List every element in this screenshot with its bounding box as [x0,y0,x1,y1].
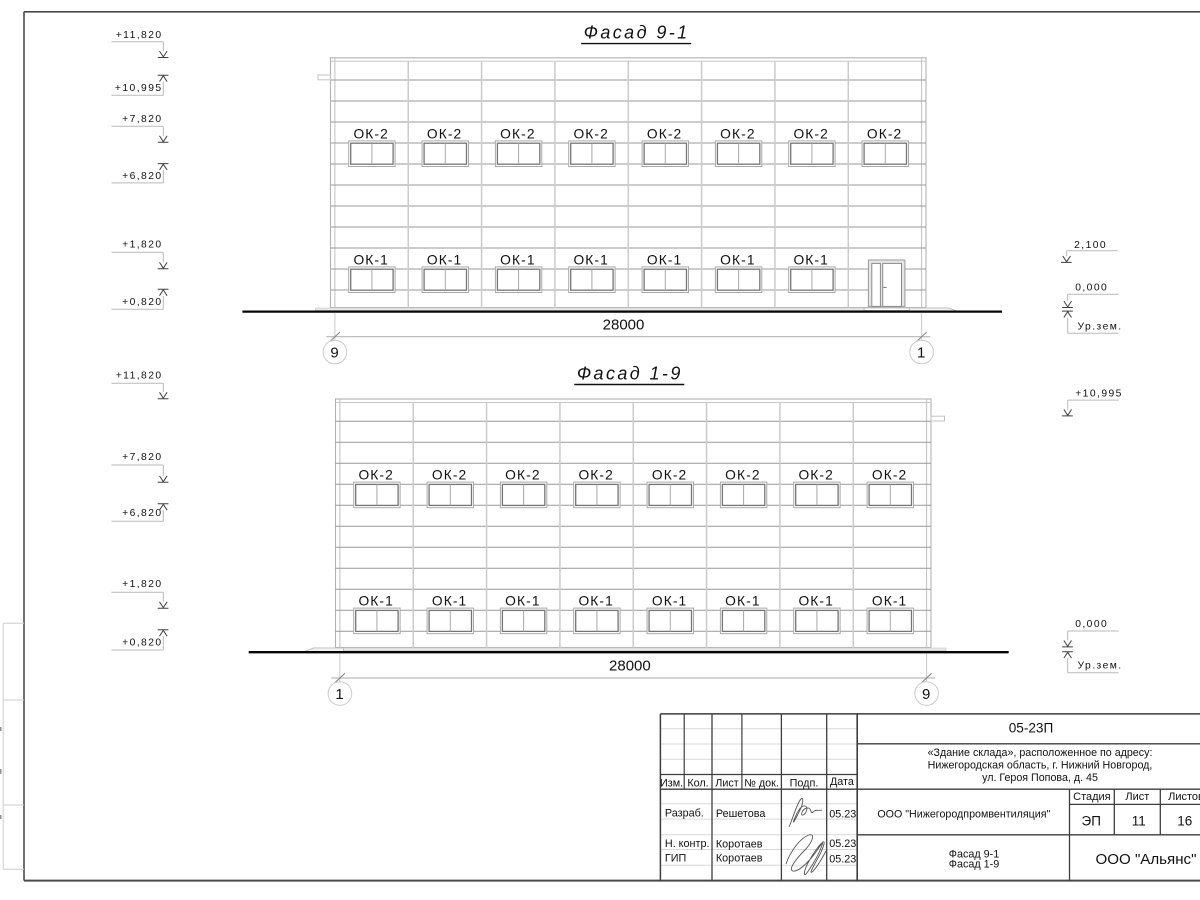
svg-text:Н. контр.: Н. контр. [665,838,710,850]
svg-text:28000: 28000 [609,658,651,675]
svg-text:05.23: 05.23 [829,838,856,850]
svg-text:ОК-1: ОК-1 [358,594,393,609]
svg-text:ОК-2: ОК-2 [353,126,388,141]
svg-text:2,100: 2,100 [1074,240,1107,251]
svg-text:№ док.: № док. [744,777,779,789]
svg-text:ОК-1: ОК-1 [573,252,608,267]
svg-text:ОК-1: ОК-1 [798,594,833,609]
svg-text:Листов: Листов [1168,791,1200,803]
svg-text:ОК-2: ОК-2 [720,126,755,141]
svg-text:+7,820: +7,820 [122,114,162,125]
svg-text:Стадия: Стадия [1073,791,1111,803]
svg-text:ОК-2: ОК-2 [432,468,467,483]
svg-text:+11,820: +11,820 [116,30,163,41]
svg-text:16: 16 [1177,814,1192,829]
svg-text:ОК-2: ОК-2 [798,468,833,483]
svg-text:ОК-1: ОК-1 [793,252,828,267]
svg-text:+0,820: +0,820 [122,297,162,308]
svg-text:Фасад 1-9: Фасад 1-9 [949,859,1000,871]
svg-text:+7,820: +7,820 [122,452,162,463]
svg-text:Ур.зем.: Ур.зем. [1078,660,1123,671]
svg-text:Коротаев: Коротаев [716,838,763,850]
svg-text:ОК-2: ОК-2 [573,126,608,141]
svg-text:ОК-1: ОК-1 [505,594,540,609]
svg-text:ОК-1: ОК-1 [432,594,467,609]
svg-text:+10,995: +10,995 [1075,388,1123,399]
svg-text:ОК-2: ОК-2 [647,126,682,141]
svg-text:«Здание склада», расположенное: «Здание склада», расположенное по адресу… [928,747,1153,759]
svg-text:Коротаев: Коротаев [716,853,763,865]
svg-text:Ур.зем.: Ур.зем. [1078,322,1123,333]
svg-text:+0,820: +0,820 [122,637,162,648]
svg-text:Разраб.: Разраб. [665,808,704,820]
svg-text:+1,820: +1,820 [122,579,162,590]
svg-text:Решетова: Решетова [716,808,766,820]
svg-text:ОК-2: ОК-2 [500,126,535,141]
svg-text:ОК-1: ОК-1 [500,252,535,267]
svg-text:05.23: 05.23 [829,808,856,820]
svg-text:ОК-2: ОК-2 [652,468,687,483]
svg-text:+6,820: +6,820 [122,171,162,182]
svg-text:1: 1 [917,344,925,361]
svg-text:ЭП: ЭП [1081,814,1100,829]
svg-text:ОК-2: ОК-2 [872,468,907,483]
svg-text:+1,820: +1,820 [122,240,162,251]
svg-text:ОК-2: ОК-2 [725,468,760,483]
svg-text:ОК-1: ОК-1 [353,252,388,267]
svg-text:Фасад 1-9: Фасад 1-9 [577,363,683,383]
svg-text:ОК-2: ОК-2 [793,126,828,141]
svg-text:ОК-2: ОК-2 [427,126,462,141]
svg-text:9: 9 [330,344,338,361]
svg-text:1: 1 [335,686,343,703]
svg-text:+10,995: +10,995 [115,83,163,94]
svg-text:Дата: Дата [830,776,854,788]
svg-text:ОК-1: ОК-1 [872,594,907,609]
svg-text:ОК-2: ОК-2 [867,126,902,141]
svg-text:ОК-1: ОК-1 [725,594,760,609]
svg-text:Фасад 9-1: Фасад 9-1 [584,22,690,42]
svg-text:ОК-1: ОК-1 [578,594,613,609]
svg-text:+11,820: +11,820 [116,370,163,381]
svg-text:ООО "Альянс": ООО "Альянс" [1096,851,1197,868]
svg-text:Нижегородская область, г. Нижн: Нижегородская область, г. Нижний Новгоро… [928,760,1153,772]
svg-text:ОК-2: ОК-2 [578,468,613,483]
svg-text:ул. Героя Попова, д. 45: ул. Героя Попова, д. 45 [982,772,1098,784]
svg-text:Лист: Лист [1125,791,1149,803]
svg-text:+6,820: +6,820 [122,508,162,519]
svg-text:ОК-2: ОК-2 [358,468,393,483]
svg-text:11: 11 [1132,814,1146,829]
svg-text:0,000: 0,000 [1075,619,1108,630]
svg-text:Кол.: Кол. [687,777,708,789]
svg-text:ОК-1: ОК-1 [720,252,755,267]
svg-text:ООО "Нижегородпромвентиляция": ООО "Нижегородпромвентиляция" [877,809,1050,821]
svg-text:Подп.: Подп. [790,777,819,789]
svg-text:Лист: Лист [715,777,739,789]
svg-text:ГИП: ГИП [665,852,686,864]
svg-text:ОК-1: ОК-1 [427,252,462,267]
svg-text:ОК-2: ОК-2 [505,468,540,483]
svg-text:05.23: 05.23 [829,853,856,865]
svg-text:0,000: 0,000 [1075,283,1108,294]
svg-text:Изм.: Изм. [660,777,683,789]
svg-text:28000: 28000 [603,317,645,334]
svg-text:05-23П: 05-23П [1009,720,1054,735]
svg-text:ОК-1: ОК-1 [652,594,687,609]
svg-text:9: 9 [922,686,930,703]
svg-text:ОК-1: ОК-1 [647,252,682,267]
